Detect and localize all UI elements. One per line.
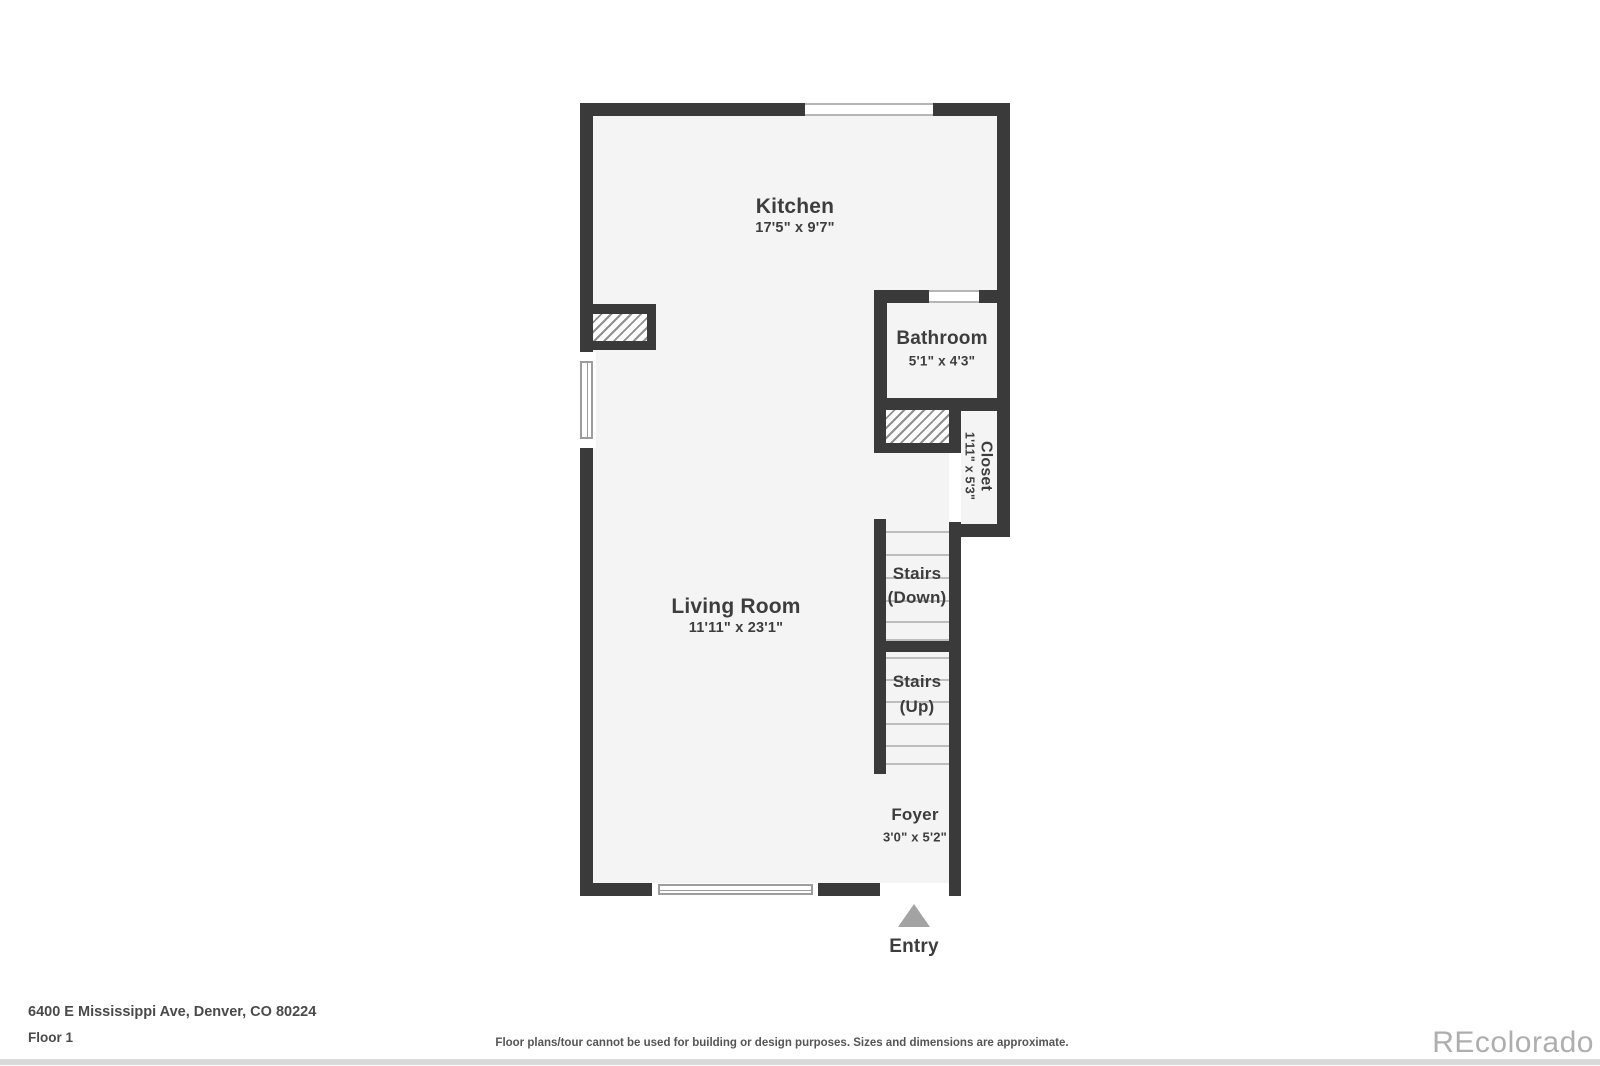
wall-left-lower bbox=[580, 448, 593, 896]
bathroom-wall-top-seg2 bbox=[979, 290, 1010, 303]
living-room-label: Living Room bbox=[671, 595, 800, 619]
entry-label: Entry bbox=[889, 936, 939, 958]
stair-tread bbox=[886, 745, 949, 747]
fireplace-hatch bbox=[593, 314, 647, 341]
living-room-front-window bbox=[658, 884, 813, 895]
entry-arrow-icon bbox=[898, 904, 930, 927]
foyer-label: Foyer bbox=[891, 805, 938, 825]
kitchen-dims: 17'5" x 9'7" bbox=[755, 220, 835, 236]
floorplan-page: Kitchen 17'5" x 9'7" Bathroom 5'1" x 4'3… bbox=[0, 0, 1600, 1066]
stair-tread bbox=[886, 723, 949, 725]
stair-tread bbox=[886, 621, 949, 623]
stairs-up-label-line1: Stairs bbox=[893, 672, 941, 692]
floor-indicator: Floor 1 bbox=[28, 1030, 73, 1045]
stair-tread bbox=[886, 554, 949, 556]
stairs-up-label-line2: (Up) bbox=[900, 697, 935, 717]
wall-top-left-segment bbox=[580, 103, 805, 116]
living-room-dims: 11'11" x 23'1" bbox=[689, 620, 783, 636]
disclaimer-text: Floor plans/tour cannot be used for buil… bbox=[495, 1037, 1068, 1049]
closet-label-block: Closet 1'11" x 5'3" bbox=[962, 432, 995, 500]
bottom-edge-strip bbox=[0, 1059, 1600, 1065]
wall-bottom-seg2 bbox=[813, 883, 880, 896]
bathroom-wall-left bbox=[874, 290, 887, 411]
recolorado-watermark: REcolorado bbox=[1432, 1026, 1594, 1060]
closet-label: Closet bbox=[977, 432, 995, 500]
stair-tread bbox=[886, 531, 949, 533]
bathroom-window bbox=[929, 290, 979, 303]
stairs-down-label-line2: (Down) bbox=[888, 588, 947, 608]
wall-right-upper bbox=[997, 103, 1010, 537]
foyer-dims: 3'0" x 5'2" bbox=[883, 830, 947, 845]
entry-door-opening bbox=[880, 883, 949, 896]
property-address: 6400 E Mississippi Ave, Denver, CO 80224 bbox=[28, 1004, 316, 1020]
kitchen-label: Kitchen bbox=[756, 195, 834, 219]
stairs-wall-right bbox=[949, 531, 961, 896]
bathroom-wall-top-seg1 bbox=[874, 290, 929, 303]
bathroom-dims: 5'1" x 4'3" bbox=[909, 354, 975, 369]
closet-door-opening bbox=[949, 453, 961, 522]
bathroom-label: Bathroom bbox=[896, 328, 987, 350]
stairs-separator-wall bbox=[874, 641, 961, 652]
stairs-down-label-line1: Stairs bbox=[893, 564, 941, 584]
stair-tread bbox=[886, 657, 949, 659]
kitchen-window bbox=[805, 103, 933, 116]
stair-tread bbox=[886, 763, 949, 765]
utility-chase-hatch bbox=[886, 410, 949, 443]
living-room-side-window bbox=[580, 361, 593, 439]
closet-dims: 1'11" x 5'3" bbox=[962, 432, 977, 500]
stair-tread bbox=[886, 639, 949, 641]
wall-bottom-seg1 bbox=[580, 883, 658, 896]
